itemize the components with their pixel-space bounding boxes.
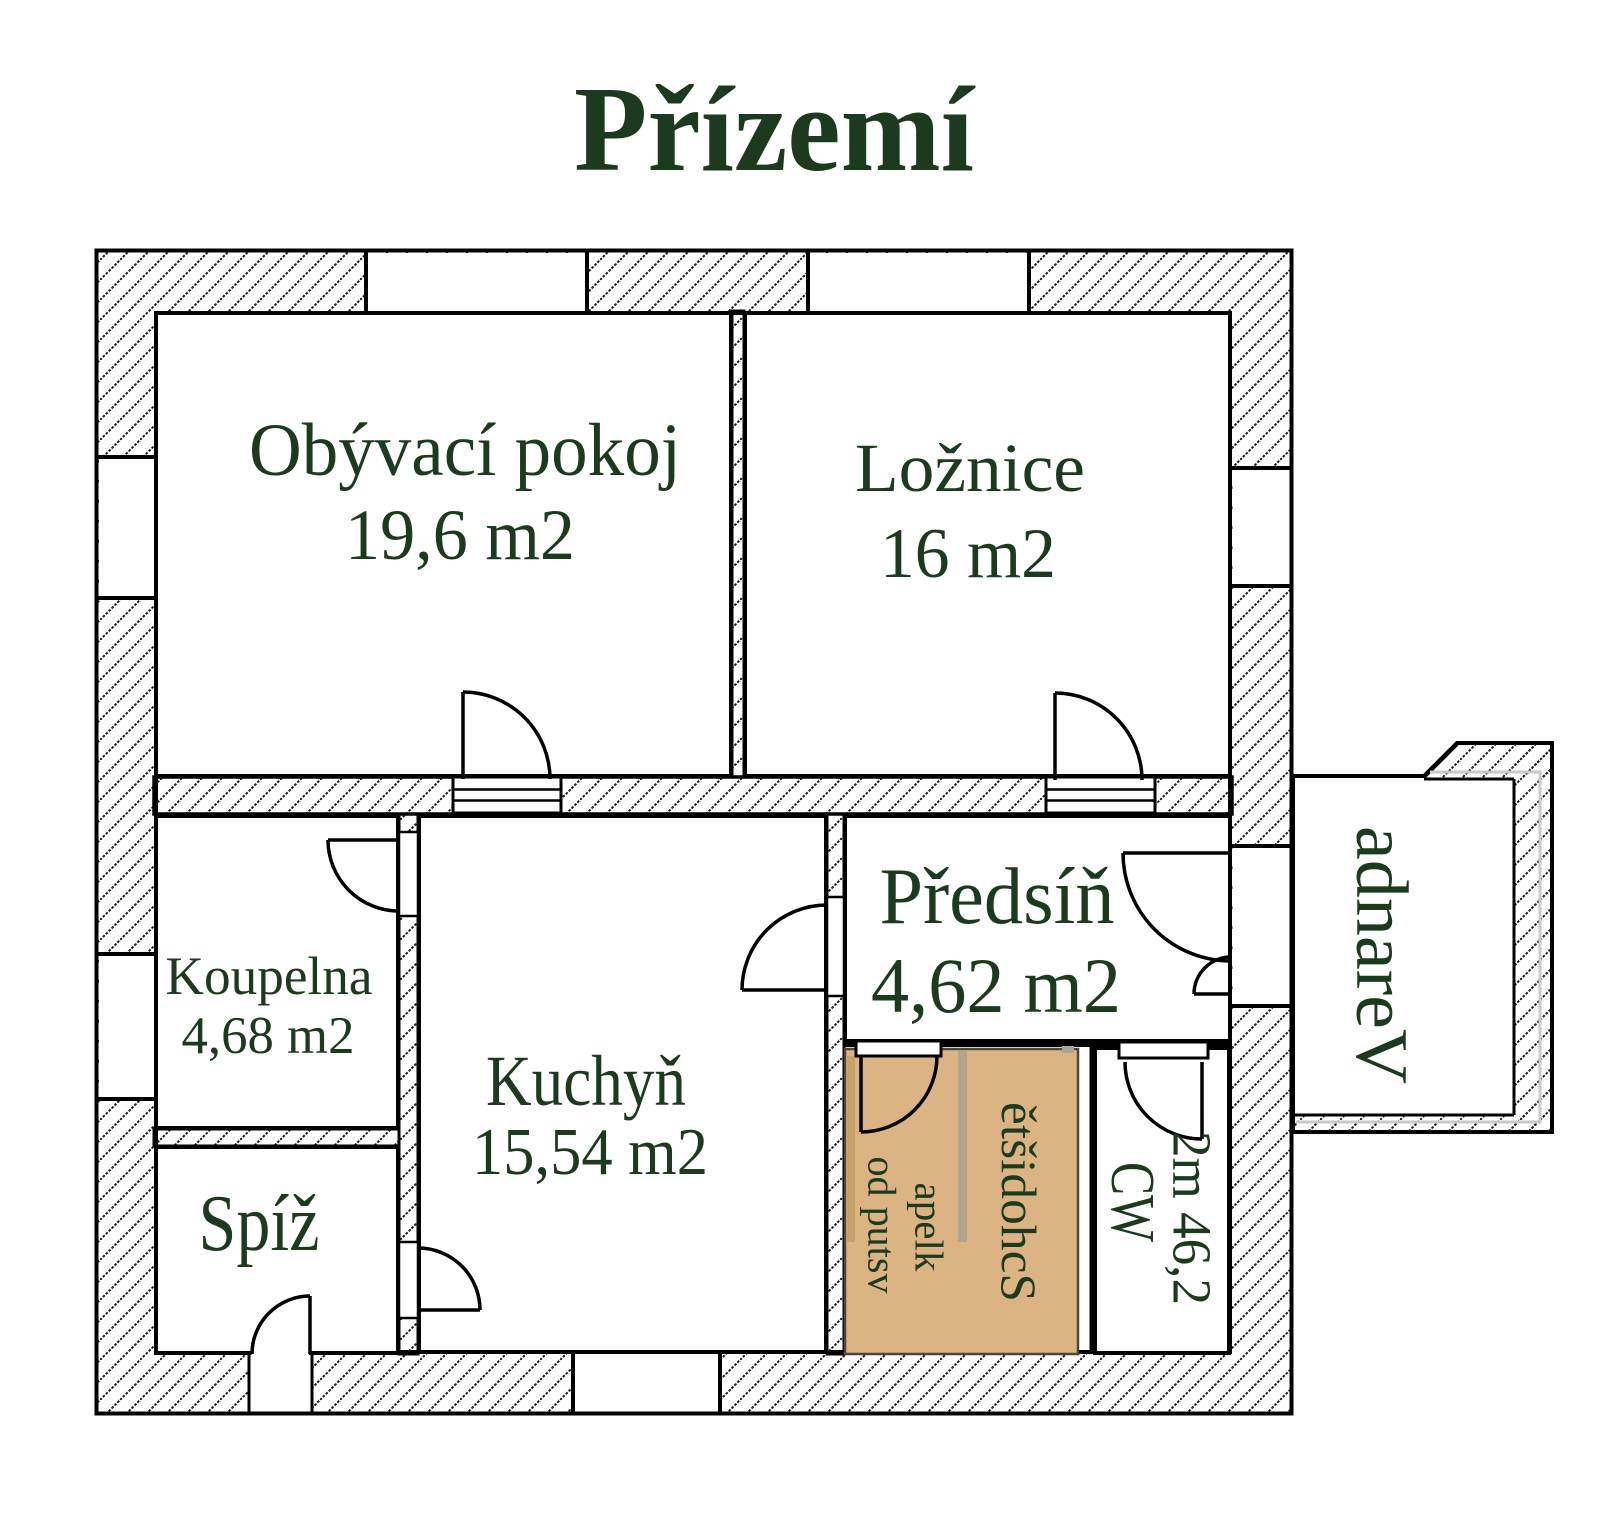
svg-text:apelk: apelk [907,1183,952,1272]
svg-text:ětšidohcS: ětšidohcS [991,1102,1047,1302]
svg-text:CW: CW [1098,1162,1166,1242]
svg-text:Koupelna: Koupelna [166,946,373,1006]
svg-text:Předsíň: Předsíň [880,853,1115,941]
svg-text:Spíž: Spíž [199,1180,320,1268]
svg-text:19,6 m2: 19,6 m2 [345,495,575,575]
svg-text:2m 46,2: 2m 46,2 [1162,1131,1223,1305]
svg-text:od putsv: od putsv [860,1157,905,1294]
svg-text:4,62 m2: 4,62 m2 [871,942,1121,1029]
svg-text:Kuchyň: Kuchyň [486,1041,686,1121]
svg-text:Obývací pokoj: Obývací pokoj [249,409,681,492]
svg-text:15,54 m2: 15,54 m2 [472,1115,708,1189]
svg-text:16 m2: 16 m2 [880,515,1056,593]
svg-text:Ložnice: Ložnice [855,430,1085,506]
svg-text:4,68 m2: 4,68 m2 [182,1007,355,1065]
svg-text:adnareV: adnareV [1340,826,1422,1084]
svg-text:Přízemí: Přízemí [574,62,976,197]
